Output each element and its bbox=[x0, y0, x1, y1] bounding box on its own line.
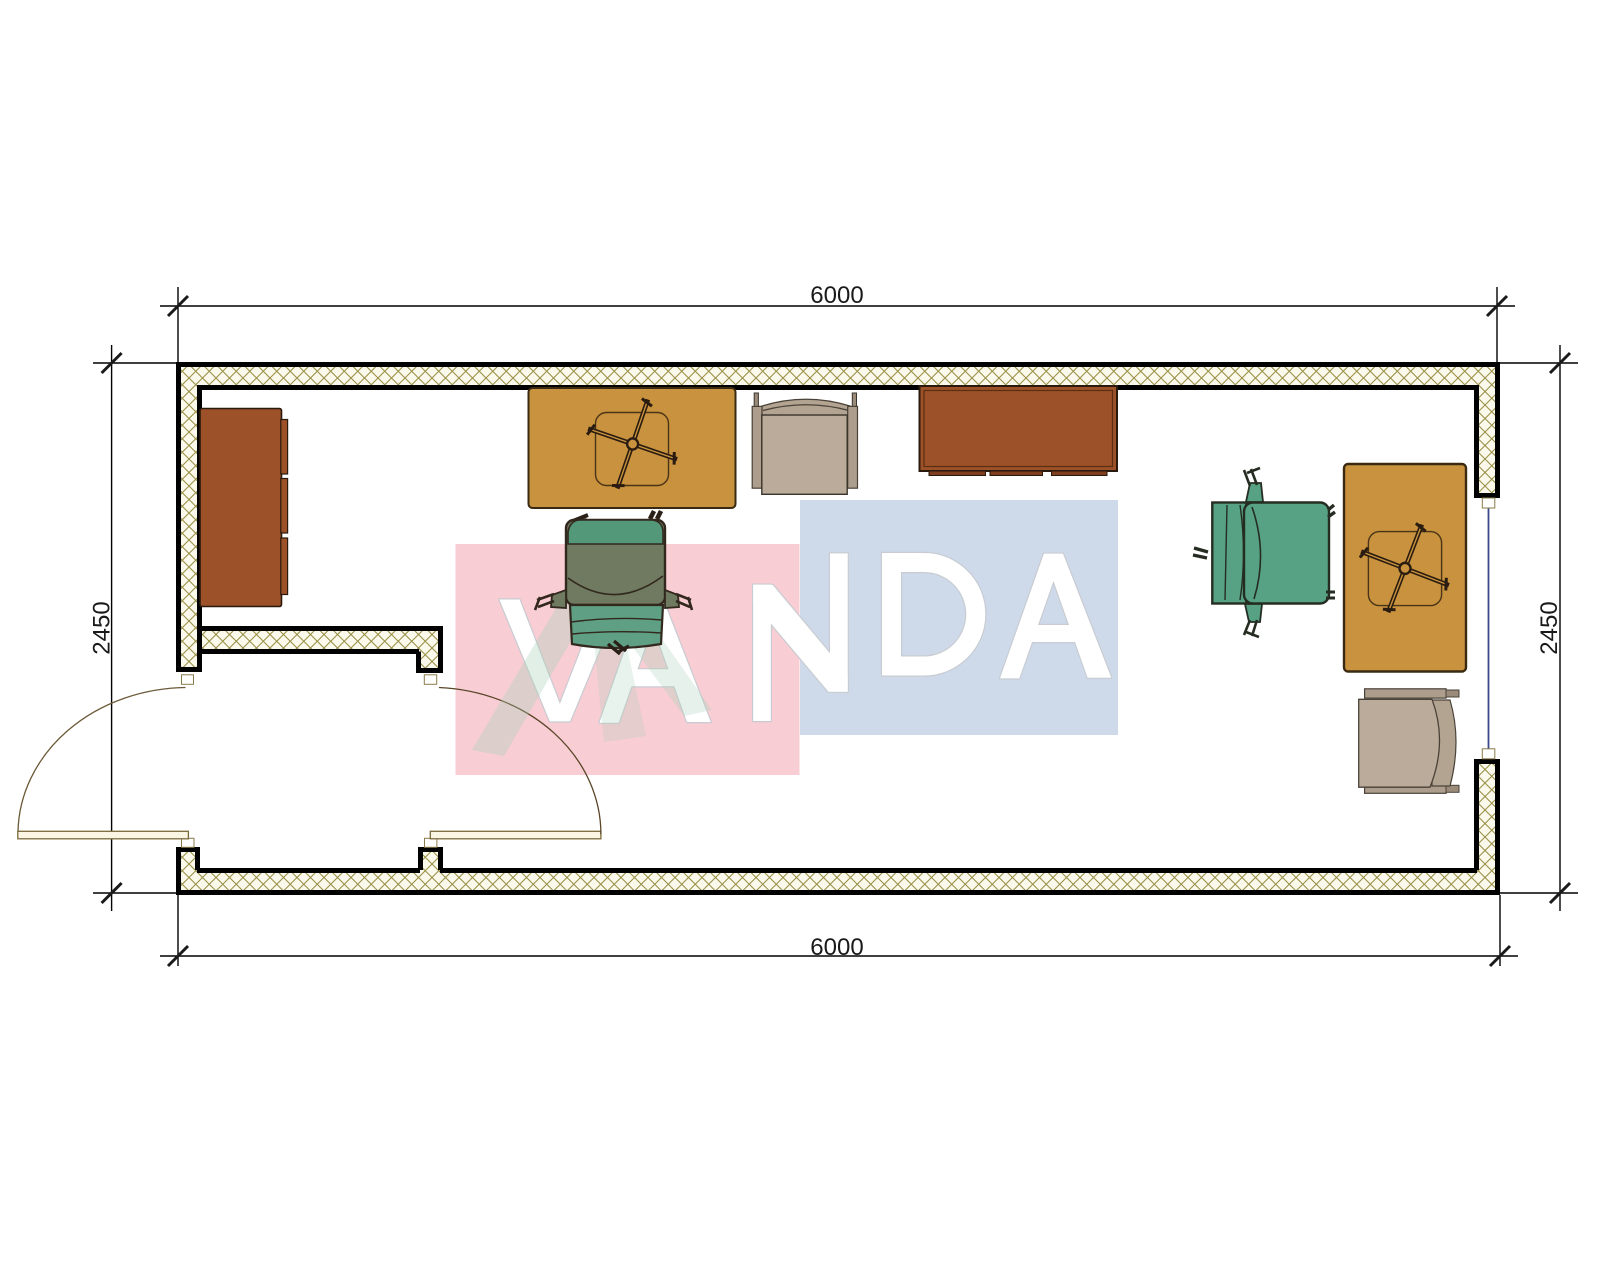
svg-text:6000: 6000 bbox=[810, 282, 863, 309]
svg-text:2450: 2450 bbox=[1536, 601, 1563, 654]
svg-text:6000: 6000 bbox=[810, 934, 863, 961]
svg-text:2450: 2450 bbox=[89, 601, 116, 654]
